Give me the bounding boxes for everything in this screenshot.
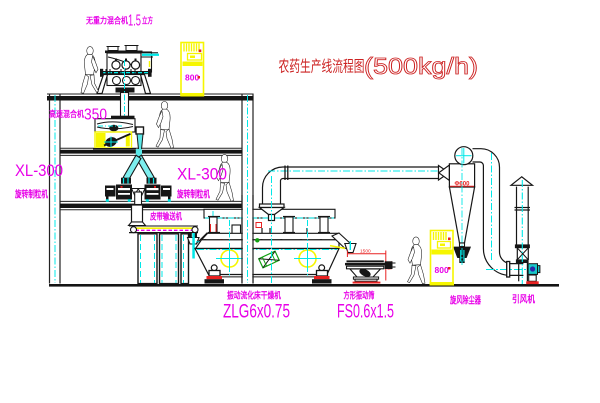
svg-text:1500: 1500	[360, 249, 371, 255]
svg-text:无重力混合机: 无重力混合机	[85, 16, 128, 26]
svg-text:XL-300: XL-300	[15, 161, 63, 180]
svg-text:高速混合机: 高速混合机	[49, 109, 84, 119]
svg-text:XL-300: XL-300	[177, 165, 227, 184]
svg-text:旋转制粒机: 旋转制粒机	[14, 189, 48, 201]
svg-text:振动流化床干燥机: 振动流化床干燥机	[227, 290, 281, 301]
svg-text:800: 800	[435, 265, 449, 275]
svg-text:1.5: 1.5	[128, 13, 141, 30]
svg-text:引风机: 引风机	[512, 294, 535, 306]
svg-text:农药生产线流程图: 农药生产线流程图	[279, 58, 365, 76]
svg-text:ZLG6x0.75: ZLG6x0.75	[223, 302, 290, 323]
svg-text:(500kg/h): (500kg/h)	[364, 53, 478, 79]
svg-text:FS0.6x1.5: FS0.6x1.5	[337, 302, 394, 323]
svg-text:皮带输送机: 皮带输送机	[149, 211, 182, 222]
svg-text:350: 350	[84, 107, 107, 124]
svg-text:旋转制粒机: 旋转制粒机	[176, 189, 210, 201]
svg-text:旋风除尘器: 旋风除尘器	[449, 295, 481, 307]
svg-text:800: 800	[185, 73, 199, 83]
svg-text:方形振动筛: 方形振动筛	[344, 290, 375, 301]
svg-text:立方: 立方	[142, 16, 153, 26]
